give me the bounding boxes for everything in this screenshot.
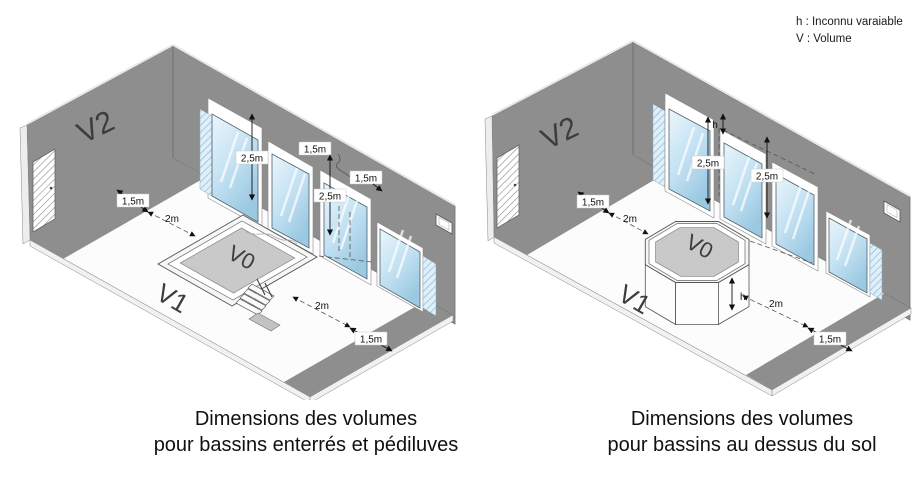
dim-window-height-2: 2,5m xyxy=(751,169,783,183)
dim-wall-strip: 1,5m xyxy=(577,195,609,209)
dim-label: 1,5m xyxy=(582,198,604,209)
diagram-buried-pool: 2,5m 1,5m 1,5m 2,5m 1,5m xyxy=(0,0,460,400)
caption-right: Dimensions des volumes pour bassins au d… xyxy=(558,406,920,458)
dim-label: 2,5m xyxy=(756,172,778,183)
legend-line-h: h : Inconnu varaiable xyxy=(796,14,903,31)
caption-right-line1: Dimensions des volumes xyxy=(558,406,920,432)
caption-left-line2: pour bassins enterrés et pédiluves xyxy=(120,432,492,458)
dim-top-gap: 1,5m xyxy=(299,142,331,156)
door-knob xyxy=(514,184,517,187)
door xyxy=(497,145,519,228)
caption-left-line1: Dimensions des volumes xyxy=(120,406,492,432)
dim-top-gap-2: 1,5m xyxy=(350,171,382,185)
caption-left: Dimensions des volumes pour bassins ente… xyxy=(120,406,492,458)
diagram-above-ground-pool: 2,5m 2,5m h 1,5m 2m h 2m 1, xyxy=(460,0,920,400)
dim-front-strip: 1,5m xyxy=(355,332,387,346)
dim-label: 2m xyxy=(315,301,329,312)
hatch-strip xyxy=(653,104,665,187)
hatch-strip xyxy=(870,243,882,300)
dim-label: 2m xyxy=(769,299,783,310)
dim-label: 2,5m xyxy=(241,154,263,165)
door-knob xyxy=(50,187,53,190)
dim-label: 2m xyxy=(623,214,637,225)
dim-h-top-label: h xyxy=(712,120,718,131)
dim-label: 1,5m xyxy=(819,335,841,346)
dim-h-pool-label: h xyxy=(740,292,746,303)
dim-label: 1,5m xyxy=(122,197,144,208)
pool-volumes-diagram: 2,5m 1,5m 1,5m 2,5m 1,5m xyxy=(0,0,920,494)
dim-window-height: 2,5m xyxy=(236,151,268,165)
hatch-strip xyxy=(200,109,212,196)
dim-window-height: 2,5m xyxy=(692,156,724,170)
dim-label: 1,5m xyxy=(304,145,326,156)
dim-front-strip: 1,5m xyxy=(814,332,846,346)
dim-label: 2,5m xyxy=(697,159,719,170)
dim-label: 2m xyxy=(165,214,179,225)
dim-label: 2,5m xyxy=(319,192,341,203)
caption-right-line2: pour bassins au dessus du sol xyxy=(558,432,920,458)
dim-label: 1,5m xyxy=(360,335,382,346)
legend: h : Inconnu varaiable V : Volume xyxy=(796,14,903,48)
dim-wall-strip: 1,5m xyxy=(117,194,149,208)
dim-label: 1,5m xyxy=(355,174,377,185)
door xyxy=(33,149,55,232)
hatch-strip xyxy=(423,256,436,316)
legend-line-v: V : Volume xyxy=(796,31,903,48)
dim-window-height-2: 2,5m xyxy=(314,189,346,203)
